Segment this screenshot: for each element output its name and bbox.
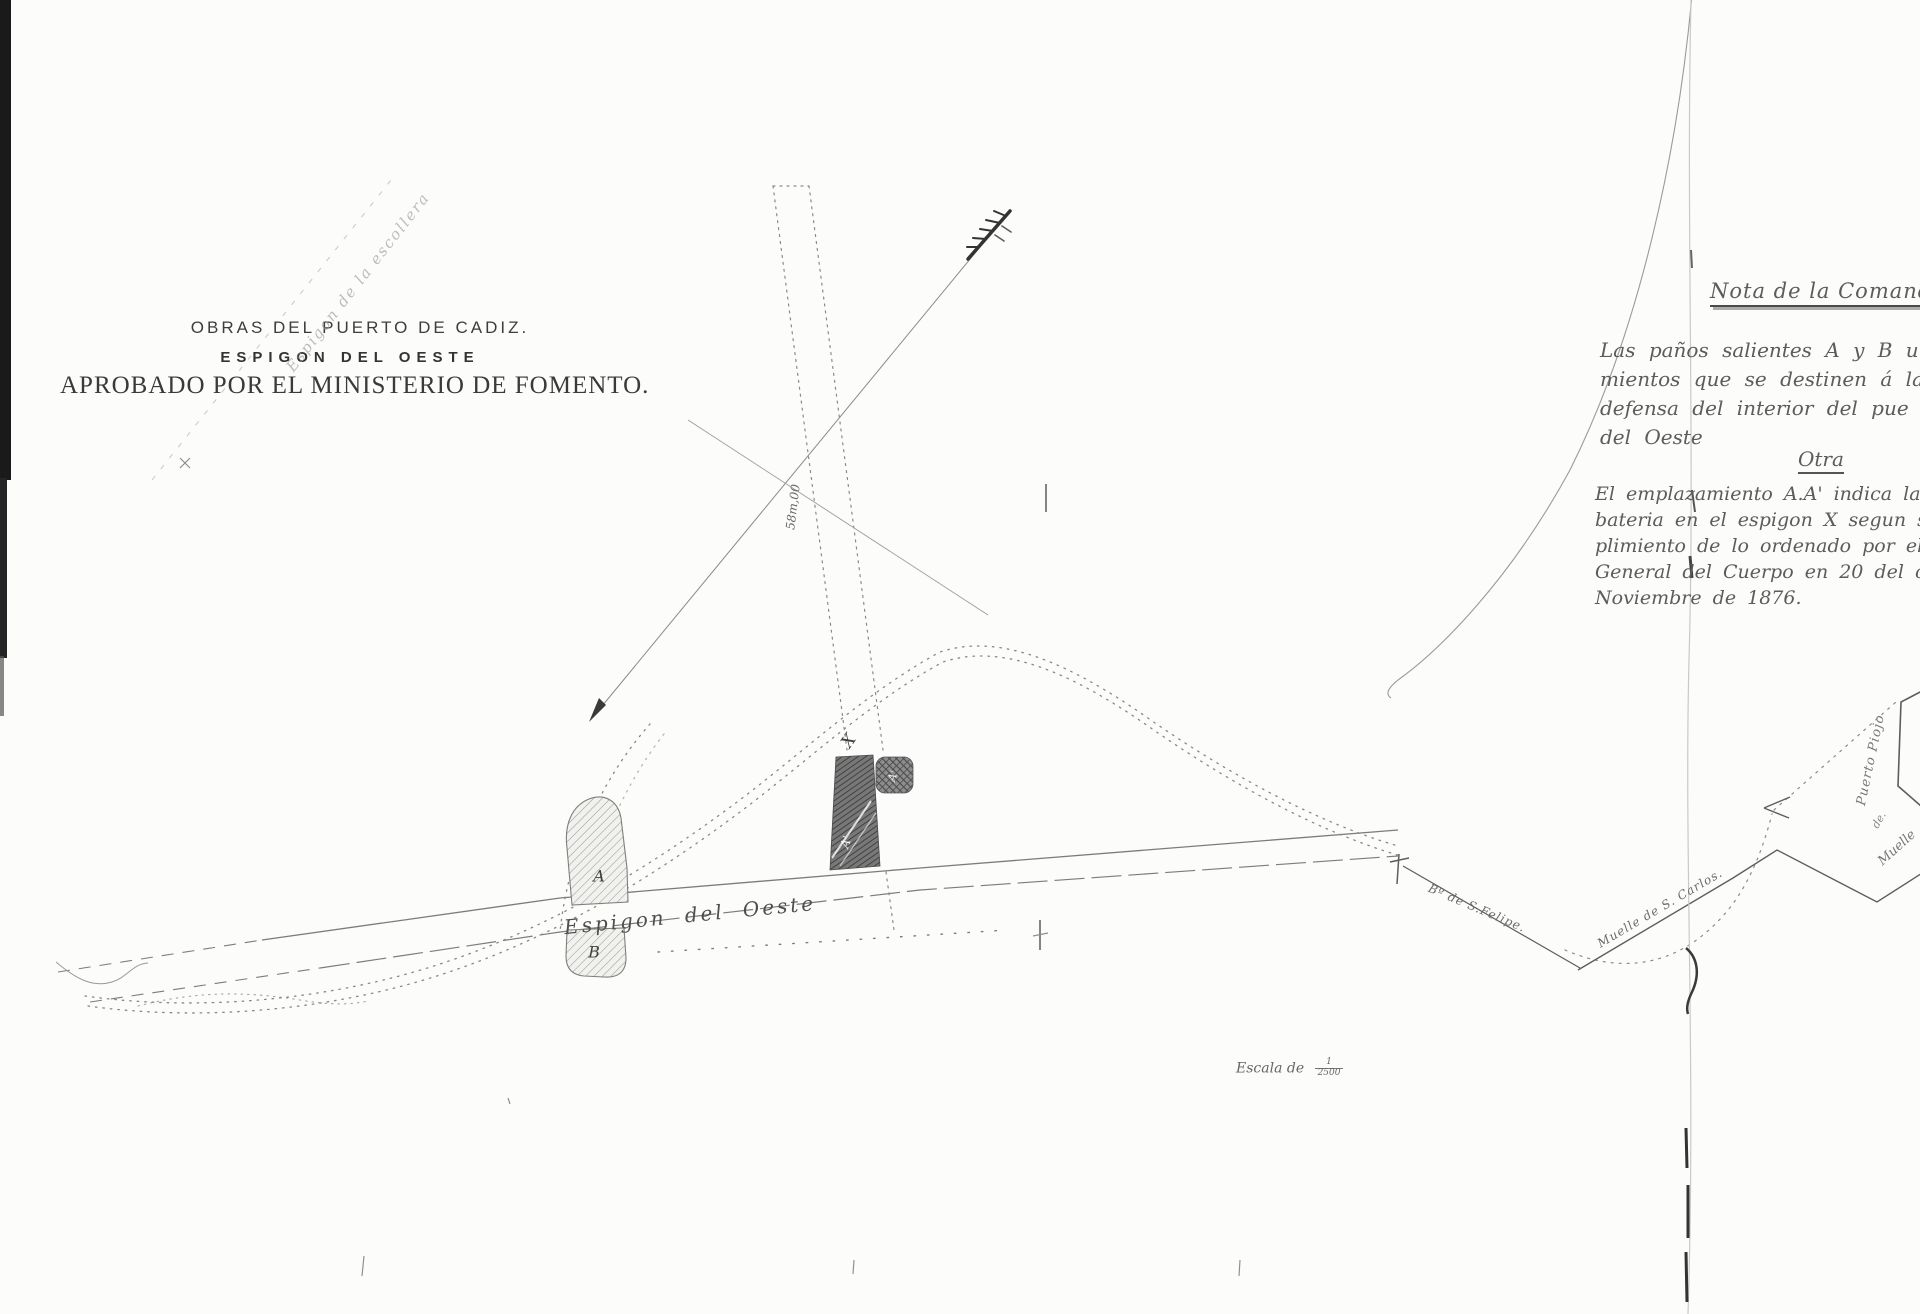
junction-marker bbox=[1390, 854, 1409, 884]
note-heading: Nota de la Comanda bbox=[1710, 279, 1920, 307]
note-p2-line2: bateria en el espigon X segun se p bbox=[1595, 507, 1920, 533]
title-line-1: OBRAS DEL PUERTO DE CADIZ. bbox=[80, 318, 640, 338]
note-p1-line3: defensa del interior del pue bbox=[1600, 394, 1920, 423]
feather-mark bbox=[967, 211, 1011, 259]
note-p2-line1: El emplazamiento A.A' indica la bbox=[1595, 481, 1920, 507]
scale-numerator: 1 bbox=[1315, 1058, 1344, 1068]
title-line-3: APROBADO POR EL MINISTERIO DE FOMENTO. bbox=[60, 372, 620, 400]
scale-note: Escala de 1 2500 bbox=[1236, 1058, 1343, 1079]
paper-crease bbox=[1686, 0, 1697, 1314]
battery-wedge-shape bbox=[830, 755, 880, 870]
note-p1-line1: Las paños salientes A y B u bbox=[1600, 336, 1920, 365]
battery-b-label: B bbox=[588, 943, 600, 962]
v-marker bbox=[1764, 797, 1790, 818]
puerto-piojo-notch bbox=[1898, 690, 1920, 806]
scale-fraction: 1 2500 bbox=[1315, 1058, 1344, 1079]
title-line-2: ESPIGON DEL OESTE bbox=[80, 349, 620, 366]
dotted-track-curve bbox=[85, 646, 1401, 1013]
scanned-map-page: OBRAS DEL PUERTO DE CADIZ. ESPIGON DEL O… bbox=[0, 0, 1920, 1314]
quay-outlines bbox=[1390, 690, 1920, 970]
note-p2-line5: Noviembre de 1876. bbox=[1595, 585, 1920, 611]
crossing-line bbox=[688, 420, 988, 615]
scale-denominator: 2500 bbox=[1315, 1068, 1344, 1079]
scan-edge-strip bbox=[0, 0, 11, 716]
arrowhead bbox=[589, 698, 606, 722]
battery-a-shape bbox=[566, 797, 628, 905]
map-drawing bbox=[0, 0, 1920, 1314]
battery-a-label: A bbox=[593, 867, 605, 886]
note-p2-line3: plimiento de lo ordenado por el Exm bbox=[1595, 533, 1920, 559]
note-paragraph-2: El emplazamiento A.A' indica la bateria … bbox=[1595, 481, 1920, 611]
survey-arrow-line bbox=[589, 211, 1011, 722]
note-p1-line4: del Oeste bbox=[1600, 423, 1920, 452]
shoreline-squiggles bbox=[56, 962, 368, 1006]
note-paragraph-1: Las paños salientes A y B u mientos que … bbox=[1600, 336, 1920, 452]
note-p2-line4: General del Cuerpo en 20 del corrie bbox=[1595, 559, 1920, 585]
scale-prefix: Escala de bbox=[1236, 1061, 1304, 1077]
note-p1-line2: mientos que se destinen á la bbox=[1600, 365, 1920, 394]
survey-ticks bbox=[180, 458, 1240, 1276]
note-subheading: Otra bbox=[1798, 447, 1844, 474]
